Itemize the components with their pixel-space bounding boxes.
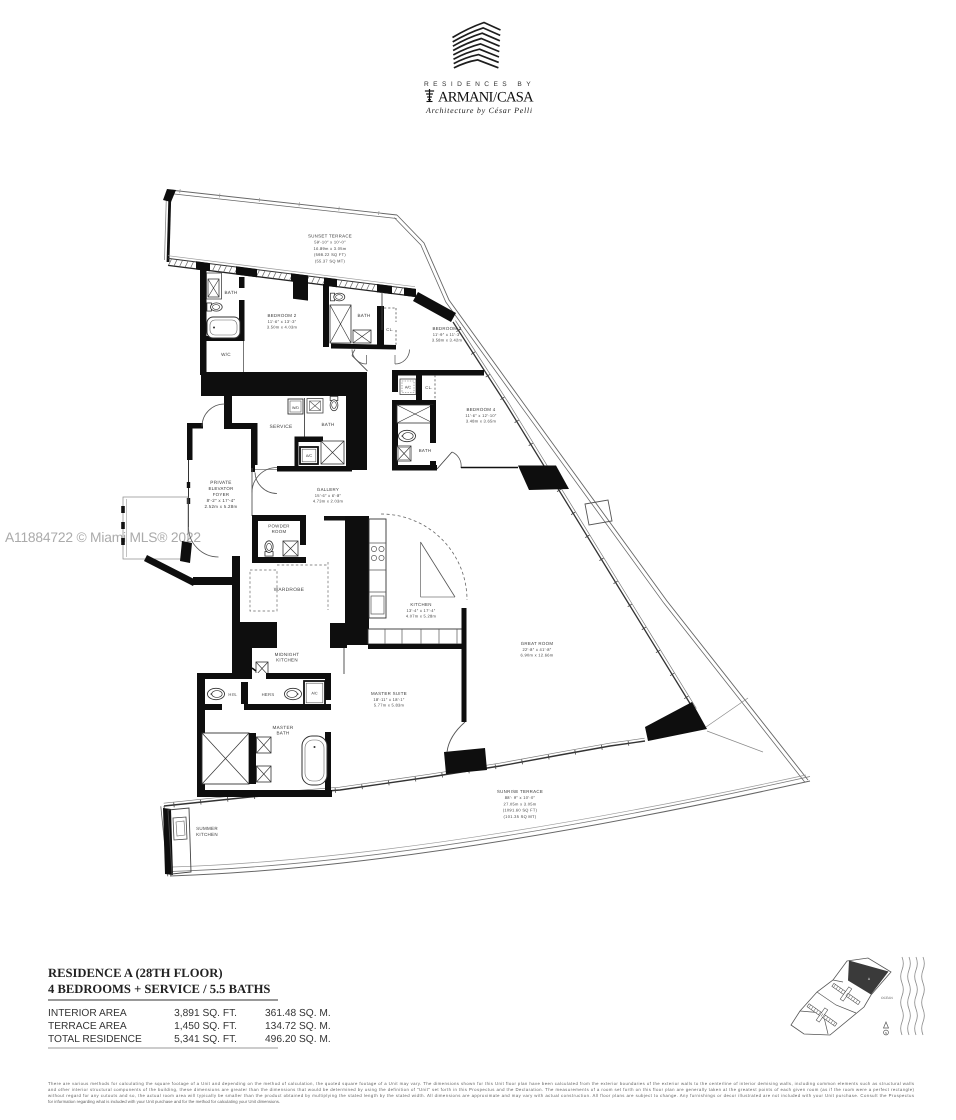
svg-text:BATH: BATH bbox=[357, 313, 370, 318]
svg-text:BEDROOM 2: BEDROOM 2 bbox=[267, 313, 296, 318]
svg-text:WARDROBE: WARDROBE bbox=[274, 587, 304, 593]
svg-text:16.89m x 3.05m: 16.89m x 3.05m bbox=[314, 246, 347, 251]
svg-text:MASTER SUITE: MASTER SUITE bbox=[371, 691, 407, 696]
svg-text:88′- 9″ x 10′-0″: 88′- 9″ x 10′-0″ bbox=[505, 795, 536, 800]
svg-text:4.07m x 5.28m: 4.07m x 5.28m bbox=[406, 614, 437, 619]
svg-text:(1091.60 SQ FT): (1091.60 SQ FT) bbox=[503, 808, 538, 813]
svg-text:W/D: W/D bbox=[292, 406, 299, 410]
svg-text:Architecture by César Pelli: Architecture by César Pelli bbox=[425, 106, 533, 115]
svg-text:SUNRISE TERRACE: SUNRISE TERRACE bbox=[497, 789, 543, 794]
svg-text:BEDROOM 3: BEDROOM 3 bbox=[432, 326, 461, 331]
svg-text:There are various methods for: There are various methods for calculatin… bbox=[48, 1081, 914, 1086]
svg-text:3.48m x 3.65m: 3.48m x 3.65m bbox=[466, 419, 497, 424]
svg-text:SERVICE: SERVICE bbox=[269, 424, 292, 430]
svg-text:4.73m x 2.03m: 4.73m x 2.03m bbox=[313, 499, 344, 504]
svg-text:without regard for any cutouts: without regard for any cutouts and so, t… bbox=[48, 1093, 914, 1098]
svg-text:HERS: HERS bbox=[262, 692, 275, 697]
svg-text:59′-10″ x 10′-0″: 59′-10″ x 10′-0″ bbox=[314, 240, 346, 245]
svg-text:MASTER: MASTER bbox=[273, 725, 294, 730]
svg-text:and other interior structural: and other interior structural components… bbox=[48, 1087, 915, 1092]
svg-text:15′-6″ x 6′-8″: 15′-6″ x 6′-8″ bbox=[315, 493, 342, 498]
svg-text:18′-11″ x 18′-1″: 18′-11″ x 18′-1″ bbox=[373, 697, 405, 702]
svg-text:496.20 SQ. M.: 496.20 SQ. M. bbox=[265, 1034, 331, 1045]
svg-text:MIDNIGHT: MIDNIGHT bbox=[275, 652, 300, 657]
svg-text:A/C: A/C bbox=[311, 691, 318, 695]
svg-text:GREAT ROOM: GREAT ROOM bbox=[521, 641, 554, 646]
svg-text:SUNSET TERRACE: SUNSET TERRACE bbox=[308, 234, 352, 239]
svg-text:11′-6″ x 13′-3″: 11′-6″ x 13′-3″ bbox=[268, 319, 297, 324]
svg-text:HIS.: HIS. bbox=[228, 692, 237, 697]
svg-text:TERRACE AREA: TERRACE AREA bbox=[48, 1021, 127, 1032]
svg-text:PRIVATE: PRIVATE bbox=[210, 480, 231, 485]
svg-text:ELEVATOR: ELEVATOR bbox=[208, 486, 233, 491]
svg-text:A/C: A/C bbox=[405, 386, 412, 390]
svg-text:KITCHEN: KITCHEN bbox=[410, 602, 431, 607]
svg-text:11′-6″ x 12′-10″: 11′-6″ x 12′-10″ bbox=[465, 413, 497, 418]
svg-text:RESIDENCES BY: RESIDENCES BY bbox=[424, 81, 534, 88]
svg-text:361.48 SQ. M.: 361.48 SQ. M. bbox=[265, 1008, 331, 1019]
svg-text:GALLERY: GALLERY bbox=[317, 487, 339, 492]
svg-text:27.05m x 3.05m: 27.05m x 3.05m bbox=[504, 801, 537, 806]
svg-text:3.50m x 4.03m: 3.50m x 4.03m bbox=[267, 325, 298, 330]
svg-text:(101.35 SQ MT): (101.35 SQ MT) bbox=[504, 814, 537, 819]
svg-text:OCEAN: OCEAN bbox=[881, 996, 893, 1000]
svg-text:13′-4″ x 17′-4″: 13′-4″ x 17′-4″ bbox=[406, 608, 435, 613]
svg-text:8′-2″ x 17′-4″: 8′-2″ x 17′-4″ bbox=[207, 498, 236, 503]
svg-text:11′-9″ x 11′-3″: 11′-9″ x 11′-3″ bbox=[433, 332, 462, 337]
svg-text:RESIDENCE A (28TH FLOOR): RESIDENCE A (28TH FLOOR) bbox=[48, 966, 223, 980]
svg-text:W/C: W/C bbox=[221, 352, 231, 357]
svg-text:BATH: BATH bbox=[419, 448, 432, 453]
svg-text:TOTAL RESIDENCE: TOTAL RESIDENCE bbox=[48, 1034, 142, 1045]
svg-text:A/C: A/C bbox=[306, 454, 313, 458]
svg-text:(598.22 SQ FT): (598.22 SQ FT) bbox=[314, 252, 346, 257]
svg-text:ARMANI / CASA: ARMANI / CASA bbox=[438, 90, 534, 106]
svg-text:INTERIOR AREA: INTERIOR AREA bbox=[48, 1008, 127, 1019]
svg-text:BATH: BATH bbox=[224, 290, 237, 295]
svg-text:KITCHEN: KITCHEN bbox=[196, 832, 218, 837]
svg-text:KITCHEN: KITCHEN bbox=[276, 658, 298, 663]
svg-text:2.52m x 5.28m: 2.52m x 5.28m bbox=[205, 504, 238, 509]
svg-text:4 BEDROOMS + SERVICE / 5.5 BAT: 4 BEDROOMS + SERVICE / 5.5 BATHS bbox=[48, 982, 270, 996]
svg-text:CL.: CL. bbox=[425, 385, 432, 390]
svg-text:A11884722 © Miami MLS® 2022: A11884722 © Miami MLS® 2022 bbox=[5, 530, 201, 545]
svg-text:6.90m x 12.66m: 6.90m x 12.66m bbox=[521, 653, 554, 658]
svg-text:5,341 SQ. FT.: 5,341 SQ. FT. bbox=[174, 1034, 237, 1045]
svg-text:FOYER: FOYER bbox=[213, 492, 230, 497]
svg-text:(55.37 SQ MT): (55.37 SQ MT) bbox=[315, 258, 346, 263]
svg-text:BEDROOM 4: BEDROOM 4 bbox=[466, 407, 495, 412]
svg-text:5.77m x 5.83m: 5.77m x 5.83m bbox=[374, 703, 405, 708]
svg-text:1,450 SQ. FT.: 1,450 SQ. FT. bbox=[174, 1021, 237, 1032]
svg-text:BATH: BATH bbox=[276, 731, 289, 736]
svg-text:POWDER: POWDER bbox=[268, 524, 290, 529]
svg-text:3,891 SQ. FT.: 3,891 SQ. FT. bbox=[174, 1008, 237, 1019]
svg-text:N: N bbox=[885, 1031, 887, 1035]
svg-text:134.72 SQ. M.: 134.72 SQ. M. bbox=[265, 1021, 331, 1032]
svg-text:22′-8″ x 41′-8″: 22′-8″ x 41′-8″ bbox=[522, 647, 551, 652]
svg-text:ROOM: ROOM bbox=[272, 529, 287, 534]
svg-text:SUMMER: SUMMER bbox=[196, 826, 218, 831]
svg-text:for information regarding what: for information regarding what is includ… bbox=[48, 1099, 280, 1104]
svg-text:CL.: CL. bbox=[386, 327, 393, 332]
svg-text:BATH: BATH bbox=[321, 422, 334, 427]
svg-text:3.58m x 3.42m: 3.58m x 3.42m bbox=[432, 338, 463, 343]
